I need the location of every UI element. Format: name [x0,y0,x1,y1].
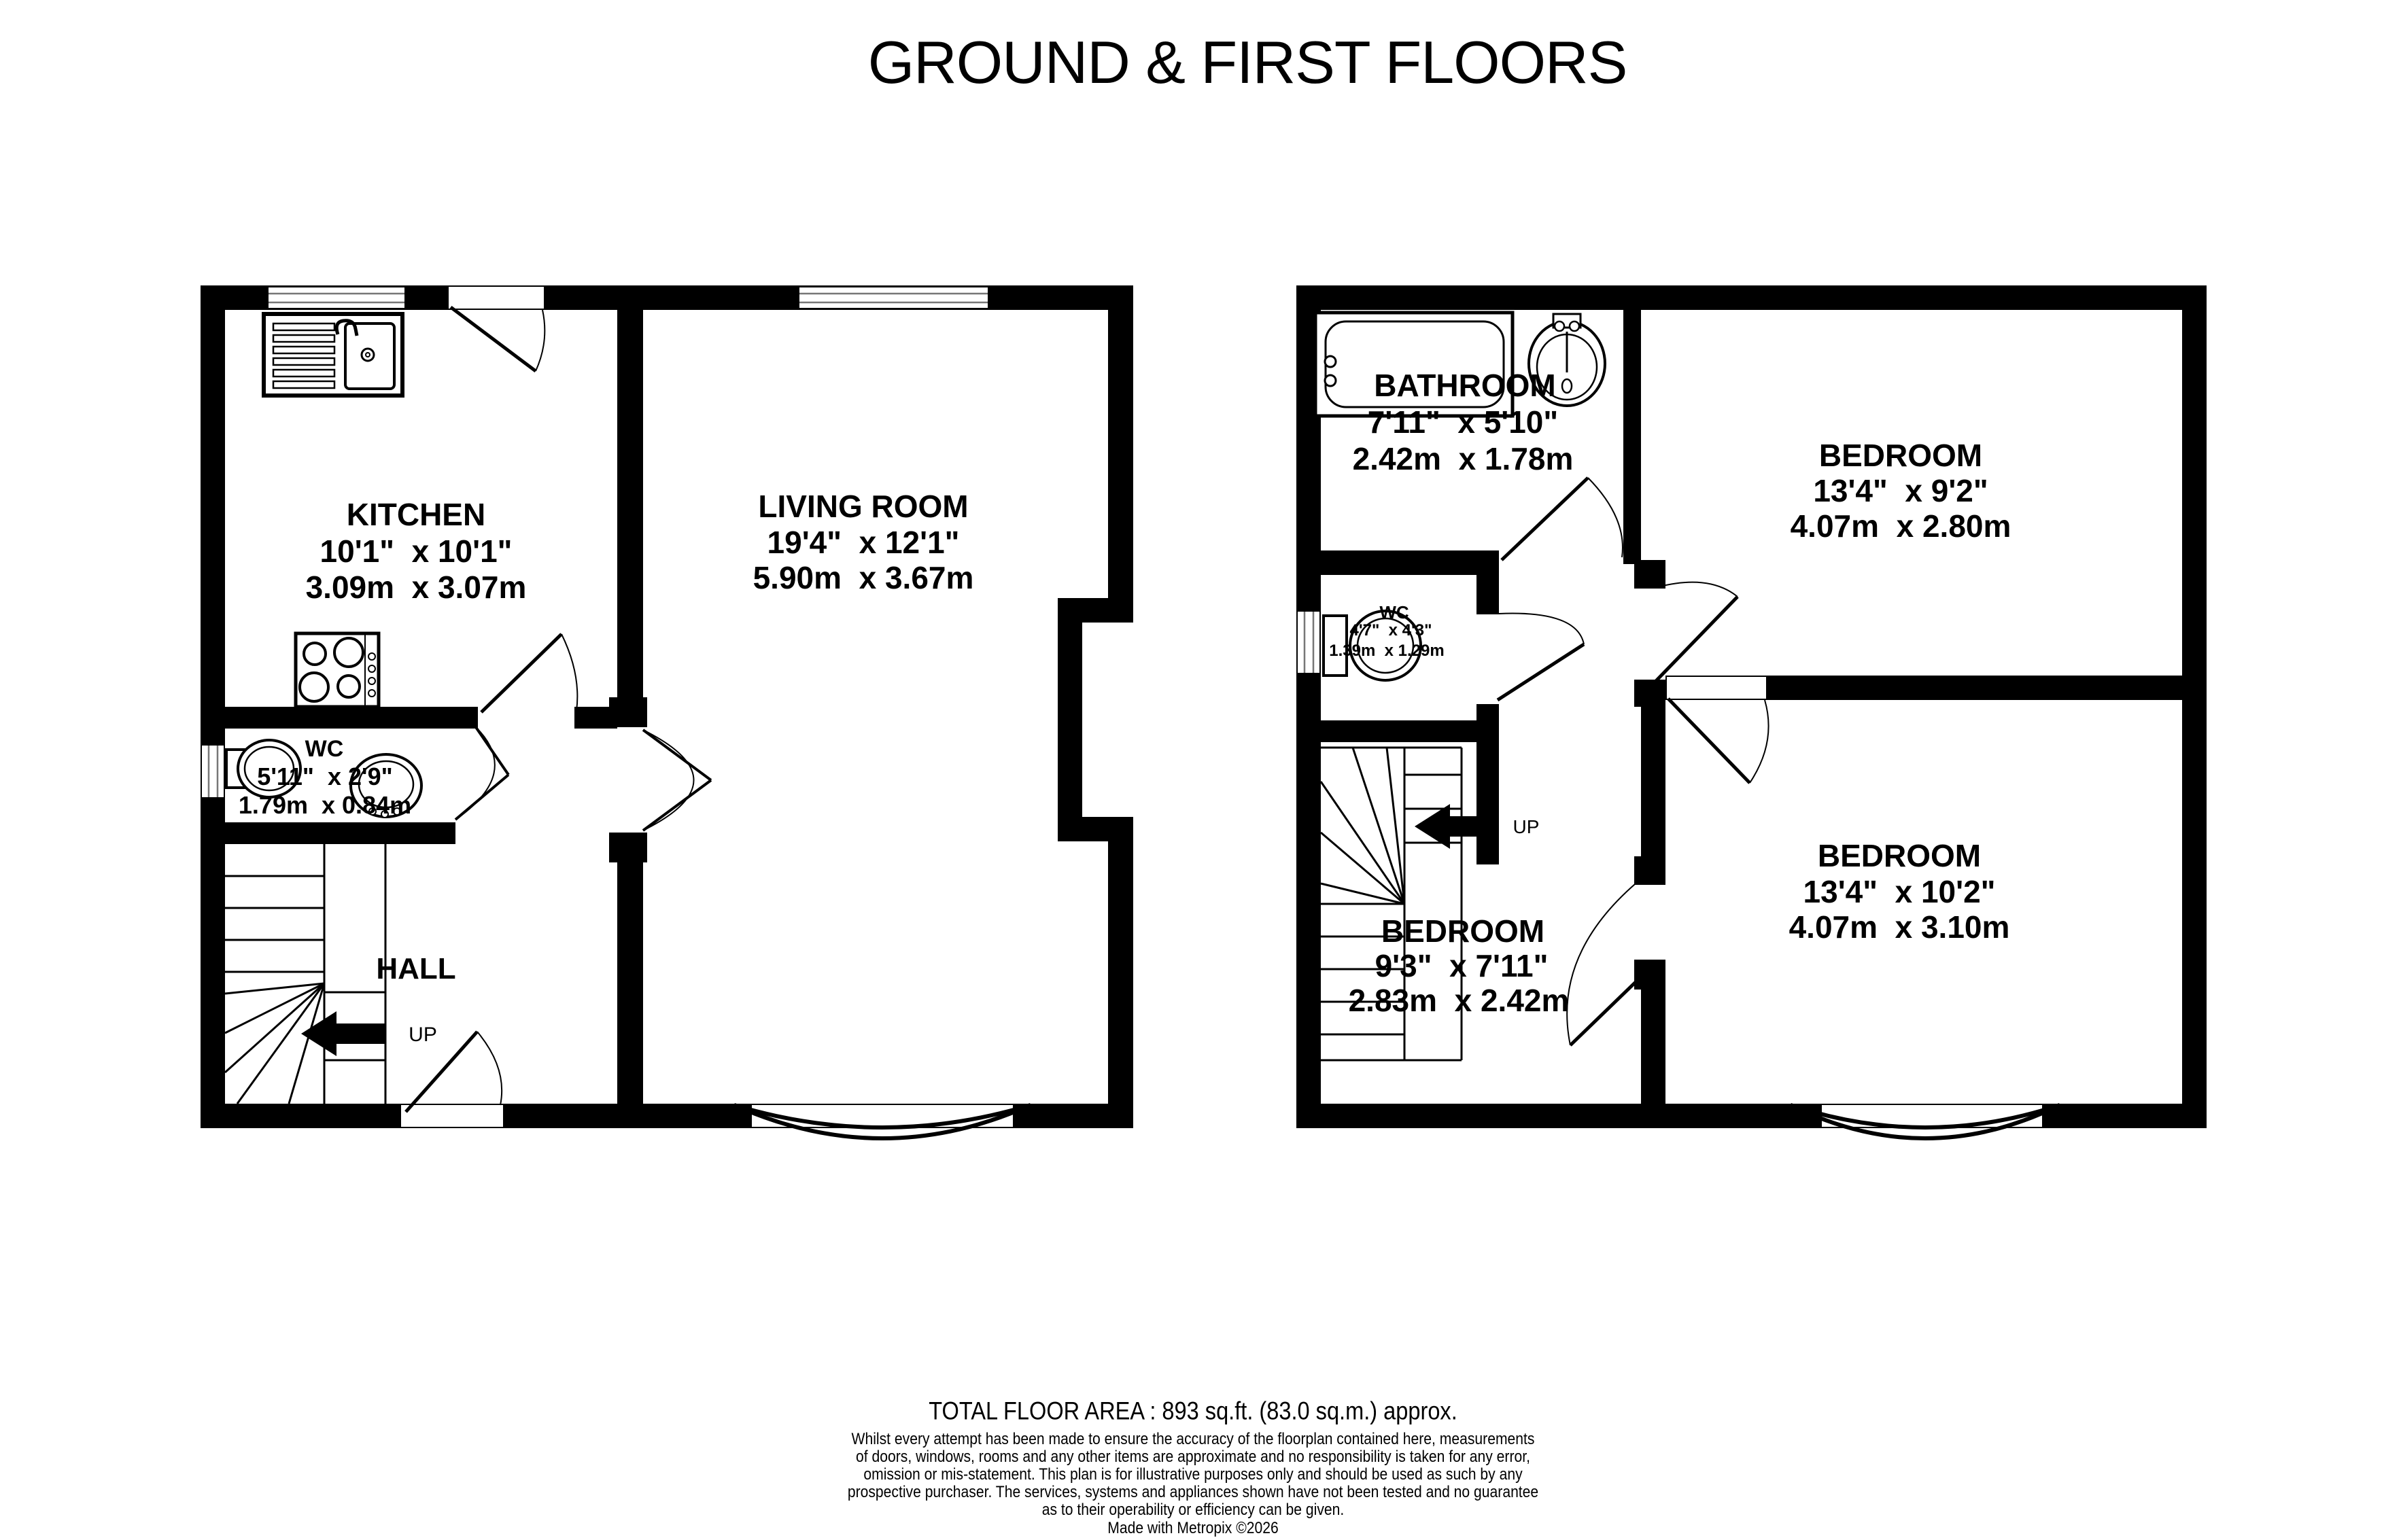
bedroom-2-imperial: 13'4" x 10'2" [1803,876,1996,907]
page-title: GROUND & FIRST FLOORS [868,33,1627,92]
bathroom-label: BATHROOM [1374,370,1555,401]
bathroom-door-icon [1502,478,1623,560]
disclaimer-line-2: of doors, windows, rooms and any other i… [856,1449,1530,1465]
kitchen-imperial: 10'1" x 10'1" [320,536,513,567]
metropix-credit: Made with Metropix ©2026 [1107,1520,1279,1537]
living-room-metric: 5.90m x 3.67m [753,562,974,593]
bedroom-2-door-icon [1668,699,1769,783]
wc-first-door-icon [1498,614,1584,700]
ground-door-jambs [451,697,1031,1128]
bathroom-metric: 2.42m x 1.78m [1353,443,1574,474]
wc-ground-door-icon [455,727,508,820]
wc-first-label: WC [1379,603,1409,621]
ground-floor-plan [201,285,1133,1138]
disclaimer-line-3: omission or mis-statement. This plan is … [863,1467,1522,1483]
living-room-label: LIVING ROOM [758,491,968,522]
total-floor-area: TOTAL FLOOR AREA : 893 sq.ft. (83.0 sq.m… [929,1399,1457,1424]
wc-ground-imperial: 5'11" x 2'9" [257,765,392,789]
disclaimer-line-5: as to their operability or efficiency ca… [1042,1502,1345,1518]
wc-ground-label: WC [305,737,344,760]
bedroom-2-metric: 4.07m x 3.10m [1789,911,2010,943]
bedroom-1-door-icon [1655,582,1738,682]
floorplan-page: GROUND & FIRST FLOORS KITCHEN 10'1" x 10… [0,0,2384,1540]
bathroom-imperial: 7'11" x 5'10" [1368,406,1558,438]
wc-ground-metric: 1.79m x 0.84m [239,793,411,818]
wc-first-imperial: 4'7" x 4'3" [1350,623,1432,639]
bedroom-1-metric: 4.07m x 2.80m [1791,510,2011,542]
bedroom-3-label: BEDROOM [1381,915,1544,947]
living-room-door-icon [643,730,711,830]
disclaimer-line-4: prospective purchaser. The services, sys… [848,1484,1538,1501]
hall-label: HALL [376,954,455,984]
kitchen-sink-icon [264,314,402,396]
ground-up-label: UP [409,1025,437,1045]
rear-door-icon [451,307,545,371]
ground-stairs [225,844,385,1104]
first-up-label: UP [1513,818,1540,837]
bedroom-3-imperial: 9'3" x 7'11" [1375,950,1549,981]
stove-icon [296,633,379,707]
bedroom-3-metric: 2.83m x 2.42m [1349,985,1570,1016]
kitchen-door-icon [481,634,577,712]
bedroom-2-label: BEDROOM [1818,840,1981,871]
kitchen-metric: 3.09m x 3.07m [306,572,527,603]
disclaimer-line-1: Whilst every attempt has been made to en… [852,1431,1535,1448]
bedroom-1-imperial: 13'4" x 9'2" [1813,475,1988,506]
bedroom-1-label: BEDROOM [1819,440,1982,471]
living-room-imperial: 19'4" x 12'1" [767,527,960,558]
kitchen-label: KITCHEN [347,499,485,530]
wc-first-metric: 1.39m x 1.29m [1329,643,1444,659]
